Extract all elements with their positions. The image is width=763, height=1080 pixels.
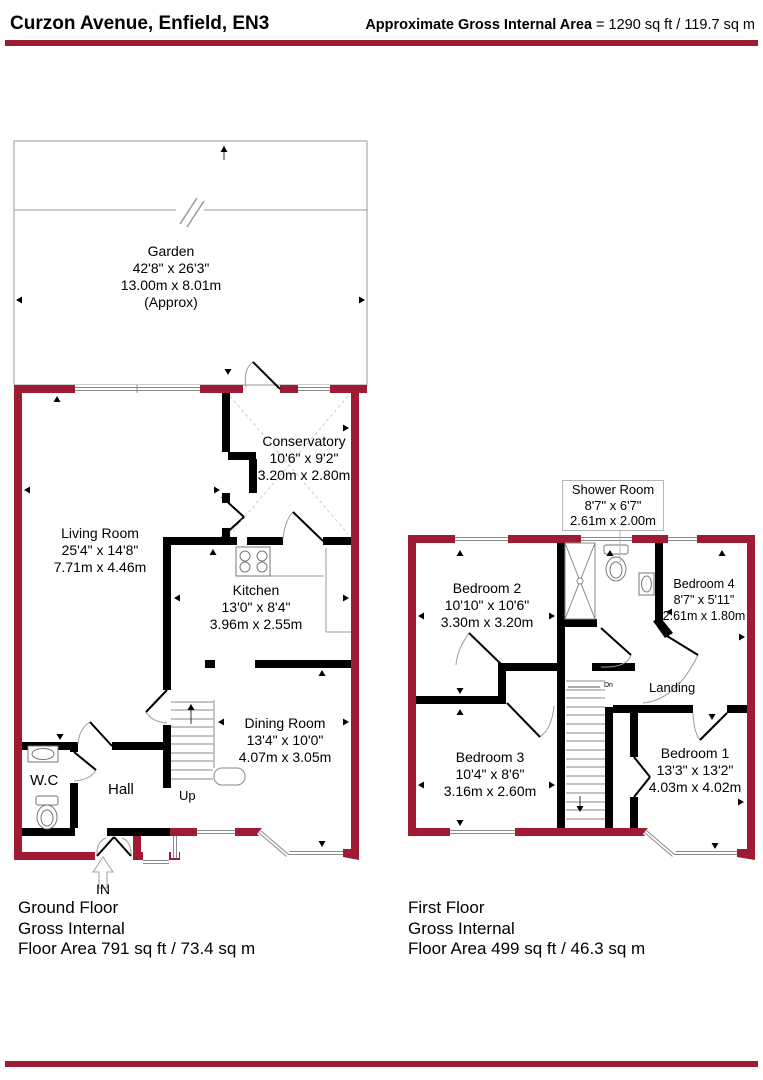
door-arc <box>643 655 698 703</box>
door-leaf <box>667 636 698 655</box>
stairs-dn-label: Dn <box>604 682 613 689</box>
room-label-conservatory: Conservatory 10'6" x 9'2" 3.20m x 2.80m <box>258 433 351 484</box>
stairs-first <box>566 681 605 819</box>
bay-window-first <box>643 828 676 858</box>
door-leaf <box>469 633 502 665</box>
door-leaf <box>293 512 323 541</box>
floorplan-page: Curzon Avenue, Enfield, EN3 Approximate … <box>0 0 763 1080</box>
room-label-bedroom-3: Bedroom 3 10'4" x 8'6" 3.16m x 2.60m <box>444 749 537 800</box>
entrance-in-label: IN <box>96 881 110 897</box>
door-arc <box>78 722 90 744</box>
door-arc <box>74 770 96 781</box>
stairs-ground <box>171 700 245 785</box>
room-label-garden: Garden 42'8" x 26'3" 13.00m x 8.01m (App… <box>121 243 221 311</box>
room-label-hall: Hall <box>108 781 134 798</box>
door-leaf <box>634 777 650 797</box>
room-label-shower-room: Shower Room 8'7" x 6'7" 2.61m x 2.00m <box>562 480 664 531</box>
room-label-landing: Landing <box>649 680 695 695</box>
door-leaf <box>601 628 631 655</box>
shower-icon <box>565 543 595 619</box>
door-leaf <box>507 703 540 737</box>
door-leaf <box>97 837 114 856</box>
footer-divider-bar <box>5 1061 758 1067</box>
door-leaf <box>222 497 244 517</box>
bay-window-ground <box>257 828 290 858</box>
room-label-dining-room: Dining Room 13'4" x 10'0" 4.07m x 3.05m <box>239 715 332 766</box>
door-arc <box>146 712 167 723</box>
door-arc <box>456 633 469 665</box>
first-floor-summary: First Floor Gross Internal Floor Area 49… <box>408 898 645 960</box>
door-leaf <box>222 517 244 537</box>
wc-sink-icon <box>28 746 58 762</box>
door-arc <box>540 706 554 737</box>
door-leaf <box>634 757 650 777</box>
hob-icon <box>236 547 270 576</box>
room-label-bedroom-1: Bedroom 1 13'3" x 13'2" 4.03m x 4.02m <box>649 745 742 796</box>
wc-toilet-icon <box>36 796 58 829</box>
room-label-bedroom-2: Bedroom 2 10'10" x 10'6" 3.30m x 3.20m <box>441 580 534 631</box>
door-leaf <box>114 837 131 856</box>
stairs-up-label: Up <box>179 788 196 803</box>
door-leaf <box>74 752 96 770</box>
door-leaf <box>146 690 167 712</box>
room-label-bedroom-4: Bedroom 4 8'7" x 5'11" 2.61m x 1.80m <box>663 576 746 624</box>
sink-icon-first <box>639 573 654 595</box>
toilet-icon-first <box>604 545 628 581</box>
room-label-wc: W.C <box>30 772 58 789</box>
door-arc <box>693 713 700 740</box>
door-arc <box>245 362 253 387</box>
door-leaf <box>90 722 112 746</box>
ground-floor-summary: Ground Floor Gross Internal Floor Area 7… <box>18 898 255 960</box>
garden-break-line <box>180 198 204 227</box>
room-label-kitchen: Kitchen 13'0" x 8'4" 3.96m x 2.55m <box>210 582 303 633</box>
door-arc <box>283 512 293 539</box>
room-label-living-room: Living Room 25'4" x 14'8" 7.71m x 4.46m <box>54 525 147 576</box>
